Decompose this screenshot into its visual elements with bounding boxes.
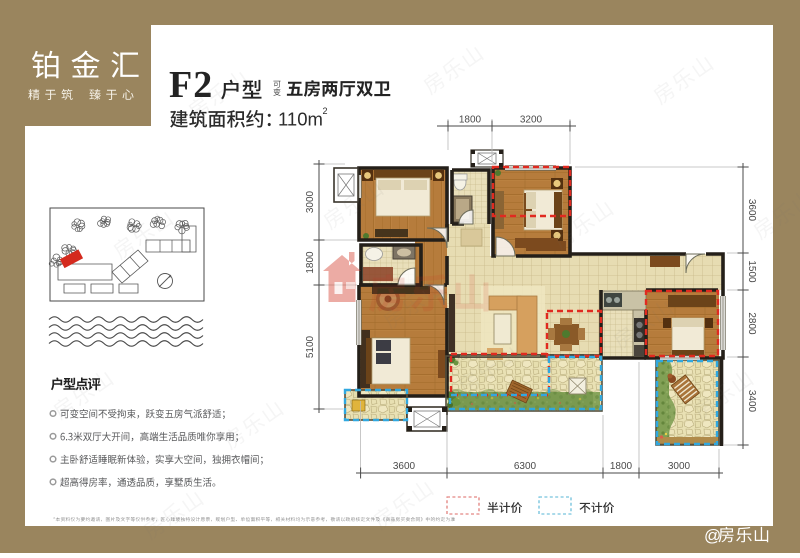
svg-text:1800: 1800 [305, 251, 316, 274]
svg-text:@: @ [704, 526, 721, 545]
svg-text:3000: 3000 [305, 190, 316, 213]
svg-text:5100: 5100 [305, 335, 316, 358]
svg-text:3600: 3600 [393, 461, 416, 472]
svg-text:3600: 3600 [746, 199, 757, 222]
svg-text:110m: 110m [278, 109, 323, 130]
svg-text:2: 2 [323, 106, 328, 116]
svg-text:6300: 6300 [514, 461, 537, 472]
svg-text:F2: F2 [169, 64, 213, 106]
svg-text:1500: 1500 [746, 260, 757, 283]
svg-text:2800: 2800 [746, 312, 757, 335]
svg-text:3000: 3000 [668, 461, 691, 472]
svg-text:3200: 3200 [520, 115, 543, 126]
svg-text:1800: 1800 [610, 461, 633, 472]
svg-text:3400: 3400 [746, 390, 757, 413]
svg-text:1800: 1800 [459, 115, 482, 126]
